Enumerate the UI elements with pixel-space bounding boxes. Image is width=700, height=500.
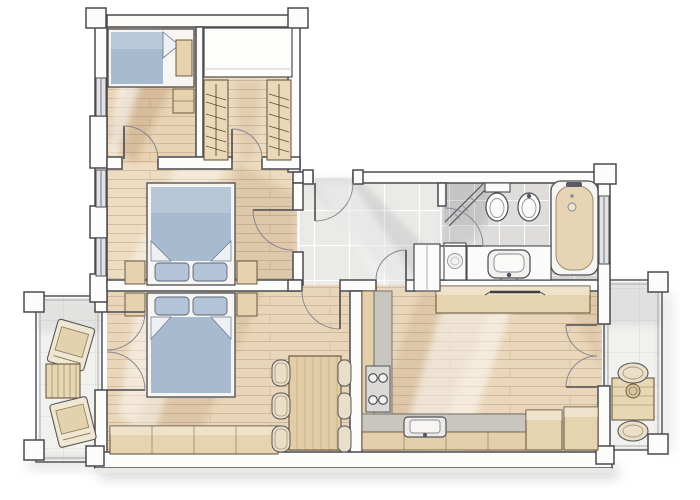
- dining-chair: [272, 393, 290, 419]
- dining-chair: [338, 360, 351, 386]
- wall-hall-west-upper: [293, 183, 303, 210]
- wall-kitchen-divider: [350, 291, 362, 454]
- wall-right-lower: [598, 386, 610, 454]
- pillar-top-mid: [288, 8, 308, 28]
- pillar-top-left: [86, 8, 106, 28]
- table-top: [46, 364, 80, 398]
- washing-machine: [444, 243, 466, 280]
- balcony-stool: [618, 363, 648, 383]
- stove: [366, 366, 390, 412]
- burner: [379, 374, 388, 383]
- unit-top-face: [564, 407, 598, 417]
- pillar-bottom-right: [596, 446, 614, 464]
- wall-divider-top-rooms: [196, 27, 203, 157]
- washer-drum: [448, 254, 463, 269]
- basin-faucet: [507, 273, 511, 277]
- chair-seat: [338, 426, 351, 452]
- wall-bottom-face: [95, 468, 612, 473]
- tub-drain: [568, 203, 576, 211]
- kitchen-counter-bottom: [362, 414, 526, 450]
- nightstand: [237, 261, 257, 284]
- burner: [369, 396, 378, 405]
- stool-seat: [618, 363, 648, 383]
- post-balcony-right-bottom: [648, 434, 668, 454]
- toilet-bowl: [486, 193, 508, 221]
- shower: [444, 182, 488, 226]
- balcony-stool: [618, 421, 648, 441]
- bathtub: [551, 181, 598, 275]
- dining-chair: [272, 426, 290, 452]
- post-balcony-right-top: [648, 272, 668, 292]
- single-bed: [108, 29, 194, 87]
- wall-top: [95, 15, 300, 27]
- wall-left-pier-1: [90, 116, 107, 168]
- wall-left-pier-3: [90, 274, 107, 302]
- sideboard: [436, 286, 590, 313]
- wall-hall-south-1: [288, 280, 302, 291]
- fridge-tall-cabinet: [414, 244, 440, 291]
- nightstand: [125, 261, 145, 284]
- tub-basin: [556, 186, 593, 270]
- bed-pillow-left: [155, 263, 189, 281]
- wall-hall-south-2: [340, 280, 376, 291]
- bed-duvet: [151, 317, 231, 393]
- chair-seat: [338, 360, 351, 386]
- vase-body: [626, 384, 640, 398]
- unit-top-face: [526, 410, 562, 420]
- double-bed-lower: [147, 293, 235, 397]
- bench-sideboard: [110, 426, 278, 454]
- washbasin: [467, 246, 551, 280]
- nightstand: [237, 293, 257, 316]
- bed-headboard-shelf: [176, 40, 192, 76]
- dining-table: [289, 356, 341, 450]
- burner: [379, 396, 388, 405]
- dining-chair: [338, 426, 351, 452]
- chair-seat: [338, 393, 351, 419]
- double-bed-middle: [147, 183, 235, 285]
- bed-pillow-right: [193, 297, 227, 315]
- kitchen-faucet: [423, 433, 427, 437]
- window-child-room: [96, 78, 106, 116]
- entry-jamb-right: [353, 170, 363, 184]
- bidet-tap: [527, 194, 531, 198]
- kitchen-unit: [564, 407, 598, 450]
- stool-seat: [618, 421, 648, 441]
- window-bedroom-middle-2: [96, 238, 106, 276]
- post-balcony-left-top: [24, 292, 44, 312]
- floor-plan-drawing: [0, 0, 700, 500]
- pillar-bottom-left: [86, 446, 104, 466]
- dining-chair: [272, 360, 290, 386]
- floor-plan-page: [0, 0, 700, 500]
- bidet: [518, 193, 540, 221]
- sideboard-top-face: [436, 286, 590, 295]
- shower-floor: [444, 182, 488, 226]
- window-bathroom: [599, 196, 609, 264]
- bed-pillow-left: [155, 297, 189, 315]
- window-bedroom-middle-1: [96, 170, 106, 207]
- table-vase: [626, 384, 640, 398]
- bed-pillow-right: [193, 263, 227, 281]
- post-balcony-left-bottom: [24, 440, 44, 460]
- pillar-top-right: [594, 164, 616, 184]
- basin-accessory: [516, 278, 519, 281]
- kitchen-counter-left: [362, 291, 392, 417]
- wall-left-pier-2: [90, 206, 107, 238]
- bed-duvet-highlight: [111, 32, 163, 49]
- wardrobe-left: [204, 80, 228, 160]
- burner: [369, 374, 378, 383]
- closet-builtin-desk: [204, 28, 292, 77]
- wardrobe-right: [267, 80, 291, 160]
- child-dresser: [173, 89, 194, 113]
- balcony-side-table: [46, 364, 80, 398]
- kitchen-unit: [526, 410, 562, 450]
- bed-duvet-highlight: [151, 187, 231, 213]
- wall-bedrooms-south-1: [107, 157, 122, 169]
- basin-accessory: [500, 278, 503, 281]
- tub-overflow: [570, 194, 574, 198]
- basin-bowl-inner: [494, 254, 524, 272]
- builtin-top: [204, 28, 292, 77]
- toilet: [485, 183, 510, 221]
- tub-faucet: [566, 182, 582, 187]
- kitchen-sink-basin: [410, 420, 440, 433]
- entry-jamb-left: [303, 170, 313, 184]
- toilet-tank: [485, 183, 510, 192]
- dining-chair: [338, 393, 351, 419]
